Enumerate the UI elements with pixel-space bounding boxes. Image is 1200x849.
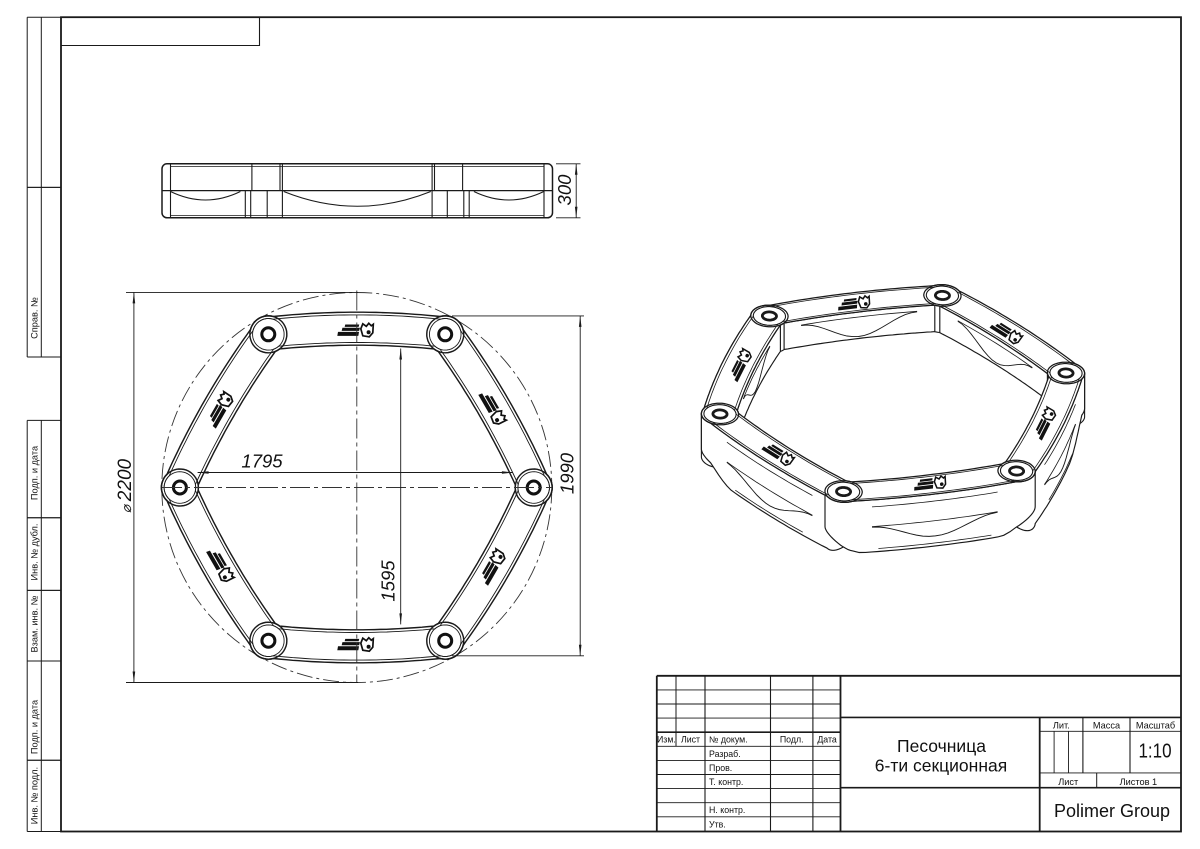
svg-text:Изм.: Изм.: [657, 735, 676, 745]
svg-text:Инв. № подл.: Инв. № подл.: [30, 767, 40, 824]
svg-text:№ докум.: № докум.: [709, 735, 748, 745]
svg-text:Дата: Дата: [817, 735, 837, 745]
svg-text:1:10: 1:10: [1138, 739, 1171, 762]
svg-text:Лит.: Лит.: [1053, 721, 1070, 731]
svg-text:Пров.: Пров.: [709, 763, 732, 773]
svg-text:Polimer Group: Polimer Group: [1054, 801, 1170, 821]
svg-text:1990: 1990: [557, 452, 578, 494]
svg-text:Подл.: Подл.: [780, 735, 804, 745]
svg-text:Взам. инв. №: Взам. инв. №: [30, 595, 40, 652]
svg-text:1795: 1795: [241, 451, 283, 472]
svg-text:300: 300: [554, 174, 575, 206]
svg-text:Справ. №: Справ. №: [30, 297, 40, 339]
svg-text:Лист: Лист: [1058, 777, 1079, 787]
svg-text:Масса: Масса: [1093, 721, 1121, 731]
svg-text:1595: 1595: [378, 560, 399, 602]
svg-text:Лист: Лист: [681, 735, 700, 745]
svg-text:Н. контр.: Н. контр.: [709, 805, 745, 815]
svg-text:Инв. № дубл.: Инв. № дубл.: [30, 524, 40, 581]
svg-text:Разраб.: Разраб.: [709, 749, 741, 759]
svg-text:Масштаб: Масштаб: [1136, 721, 1175, 731]
svg-text:Песочница: Песочница: [897, 736, 986, 756]
svg-text:Листов 1: Листов 1: [1120, 777, 1158, 787]
svg-text:Т. контр.: Т. контр.: [709, 777, 743, 787]
svg-text:⌀ 2200: ⌀ 2200: [115, 458, 136, 513]
svg-text:6-ти секционная: 6-ти секционная: [875, 756, 1007, 776]
svg-text:Подп. и дата: Подп. и дата: [30, 445, 40, 500]
svg-text:Подп. и дата: Подп. и дата: [30, 699, 40, 754]
svg-text:Утв.: Утв.: [709, 819, 726, 829]
